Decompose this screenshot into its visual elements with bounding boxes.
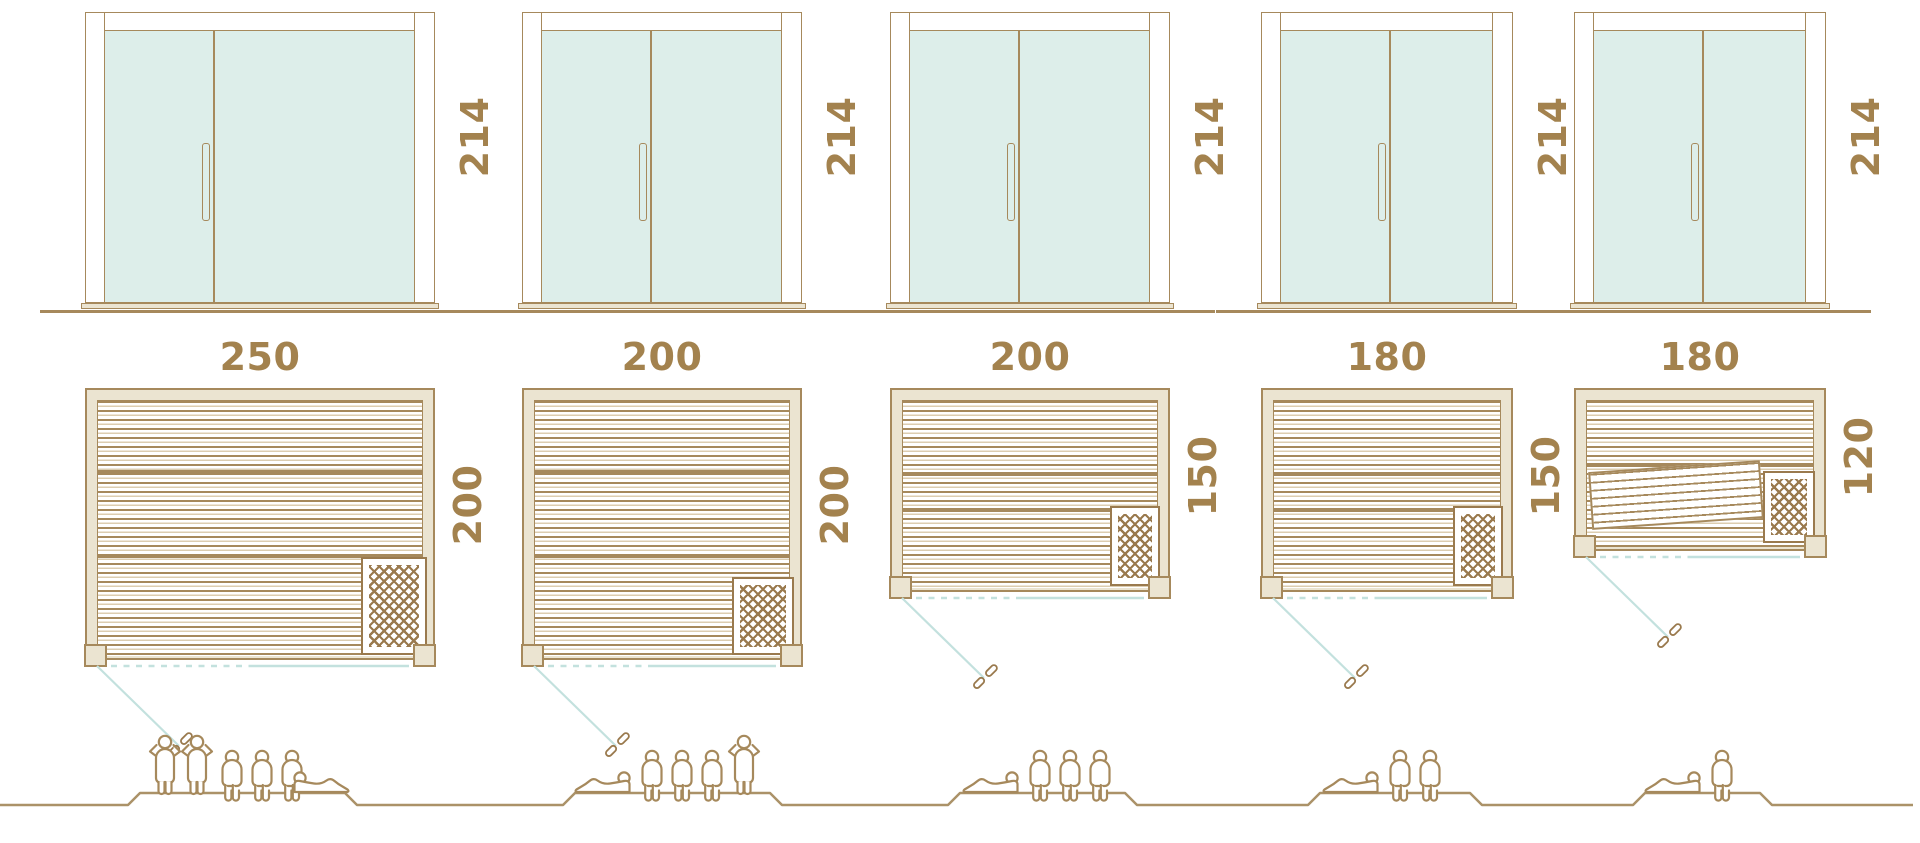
door-swing-line — [1586, 557, 1668, 637]
floor-plan: 120 — [1574, 388, 1826, 551]
door-lintel — [1593, 12, 1806, 31]
glass-door-panels — [909, 30, 1150, 303]
door-sill — [886, 303, 1174, 309]
door-frame-post-left — [85, 12, 105, 303]
sauna-model-column: 214 180 120 — [1574, 0, 1826, 843]
door-handle — [1378, 143, 1386, 221]
sauna-heater — [1110, 506, 1160, 586]
door-divider — [1702, 31, 1704, 302]
bench-edge-line — [1273, 472, 1501, 476]
sauna-model-column: 214 180 150 — [1261, 0, 1513, 843]
glass-door-panels — [1280, 30, 1493, 303]
door-sill — [1570, 303, 1830, 309]
door-divider — [650, 31, 652, 302]
door-handle-plan-icon — [1344, 664, 1369, 689]
door-swing-plan — [1247, 588, 1527, 708]
bench-edge-line — [534, 470, 790, 474]
glass-door-panels — [1593, 30, 1806, 303]
floor-line — [1216, 310, 1558, 313]
door-divider — [1018, 31, 1020, 302]
height-dimension-label: 214 — [822, 82, 862, 192]
door-frame-post-right — [1149, 12, 1170, 303]
width-dimension-label: 200 — [890, 334, 1170, 380]
door-divider — [213, 31, 215, 302]
depth-dimension-label: 150 — [1526, 431, 1566, 521]
heater-grid-icon — [1461, 514, 1495, 578]
door-handle-plan-icon — [973, 664, 998, 689]
bench-edge-line — [902, 472, 1158, 476]
floor-plan: 200 — [85, 388, 435, 660]
door-lintel — [104, 12, 415, 31]
door-lintel — [541, 12, 782, 31]
door-handle — [1007, 143, 1015, 221]
heater-grid-icon — [740, 585, 786, 647]
width-dimension-label: 250 — [85, 334, 435, 380]
door-frame-post-right — [781, 12, 802, 303]
door-swing-line — [902, 598, 984, 678]
door-swing-plan — [1560, 547, 1840, 667]
glass-door-panels — [541, 30, 782, 303]
door-handle — [1691, 143, 1699, 221]
door-frame-post-left — [522, 12, 542, 303]
door-sill — [518, 303, 806, 309]
bench-edge-line — [97, 470, 423, 474]
floor-plan: 150 — [890, 388, 1170, 592]
depth-dimension-label: 200 — [448, 460, 488, 550]
angled-bench — [1588, 460, 1764, 530]
door-lintel — [1280, 12, 1493, 31]
door-front-elevation — [85, 12, 435, 308]
door-front-elevation — [522, 12, 802, 308]
door-front-elevation — [1574, 12, 1826, 308]
door-frame-post-right — [1805, 12, 1826, 303]
floor-line — [40, 310, 480, 313]
door-handle — [202, 143, 210, 221]
width-dimension-label: 180 — [1574, 334, 1826, 380]
depth-dimension-label: 120 — [1839, 412, 1879, 502]
height-dimension-label: 214 — [455, 82, 495, 192]
sauna-model-column: 214 200 150 — [890, 0, 1170, 843]
width-dimension-label: 180 — [1261, 334, 1513, 380]
door-handle — [639, 143, 647, 221]
sauna-model-column: 214 200 200 — [522, 0, 802, 843]
depth-dimension-label: 150 — [1183, 431, 1223, 521]
door-lintel — [909, 12, 1150, 31]
depth-dimension-label: 200 — [815, 460, 855, 550]
door-frame-post-left — [1574, 12, 1594, 303]
door-frame-post-right — [1492, 12, 1513, 303]
door-sill — [1257, 303, 1517, 309]
floor-line — [477, 310, 847, 313]
heater-grid-icon — [1118, 514, 1152, 578]
heater-grid-icon — [1771, 479, 1807, 535]
door-swing-plan — [876, 588, 1184, 708]
height-dimension-label: 214 — [1190, 82, 1230, 192]
floor-plan: 150 — [1261, 388, 1513, 592]
floor-line — [845, 310, 1215, 313]
door-frame-post-left — [1261, 12, 1281, 303]
glass-door-panels — [104, 30, 415, 303]
sauna-heater — [1453, 506, 1503, 586]
door-front-elevation — [1261, 12, 1513, 308]
heater-grid-icon — [369, 565, 419, 647]
floor-line — [1529, 310, 1871, 313]
height-dimension-label: 214 — [1846, 82, 1886, 192]
sauna-size-comparison-diagram: 214 250 200 — [0, 0, 1920, 843]
sauna-heater — [1763, 471, 1815, 543]
door-frame-post-right — [414, 12, 435, 303]
door-swing-line — [1273, 598, 1355, 678]
sauna-model-column: 214 250 200 — [85, 0, 435, 843]
bench-edge-line — [534, 554, 790, 558]
height-dimension-label: 214 — [1533, 82, 1573, 192]
width-dimension-label: 200 — [522, 334, 802, 380]
door-front-elevation — [890, 12, 1170, 308]
door-sill — [81, 303, 439, 309]
door-divider — [1389, 31, 1391, 302]
floor-plan: 200 — [522, 388, 802, 660]
sauna-heater — [361, 557, 427, 655]
door-frame-post-left — [890, 12, 910, 303]
door-handle-plan-icon — [1657, 623, 1682, 648]
capacity-figures-row — [0, 730, 1920, 843]
